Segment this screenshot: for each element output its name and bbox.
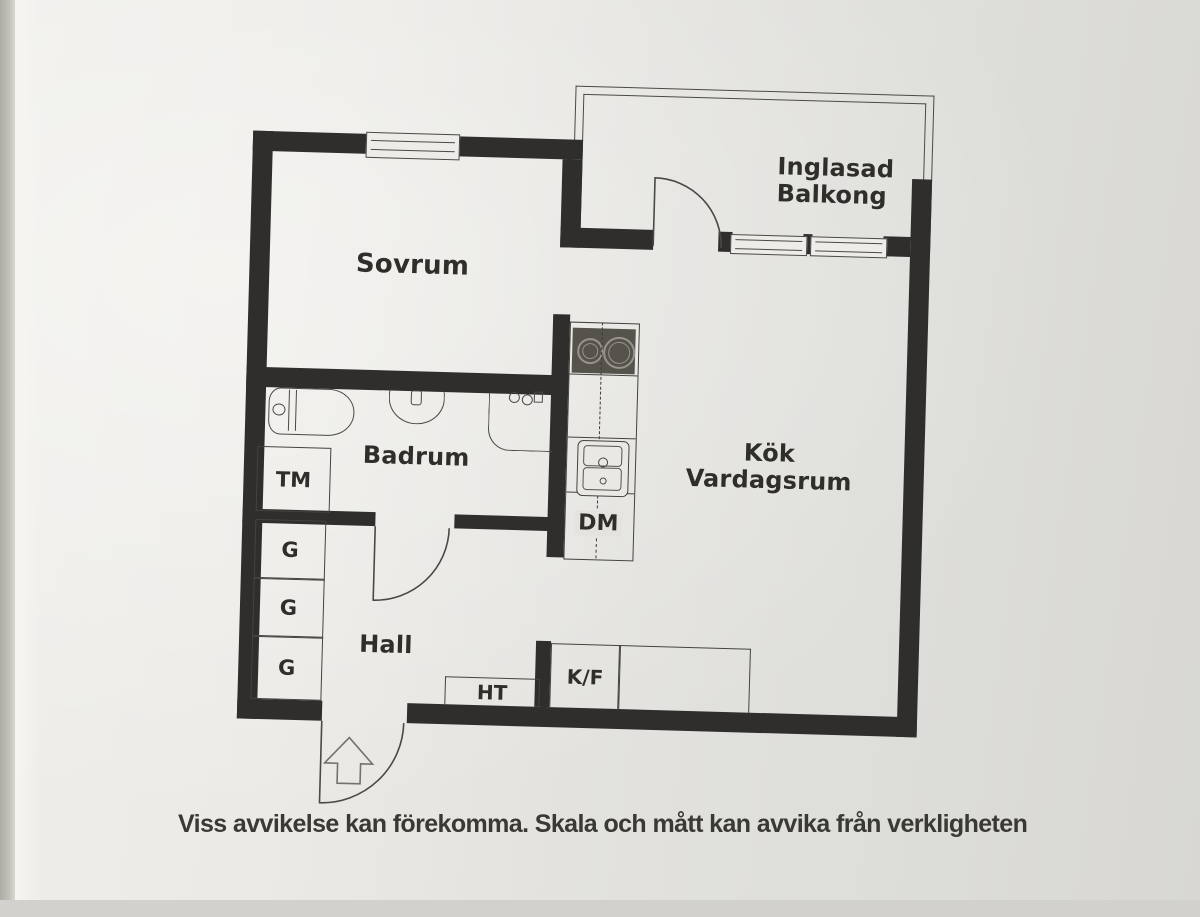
balcony-door-icon xyxy=(653,178,723,248)
bedroom-label: Sovrum xyxy=(356,249,470,282)
bathroom-door-icon xyxy=(373,526,449,602)
entrance-arrow-icon xyxy=(324,737,373,784)
kitchen-livingroom-label: Kök Vardagsrum xyxy=(685,438,853,497)
bathroom-label: Badrum xyxy=(362,441,470,472)
photo-background: TM G G G HT K/F xyxy=(0,0,1200,900)
disclaimer-caption: Viss avvikelse kan förekomma. Skala och … xyxy=(178,810,1178,839)
floor-plan: TM G G G HT K/F xyxy=(0,0,1200,917)
hall-label: Hall xyxy=(359,630,413,659)
balcony-label: Inglasad Balkong xyxy=(776,153,894,210)
door-swings-overlay xyxy=(0,0,1200,917)
